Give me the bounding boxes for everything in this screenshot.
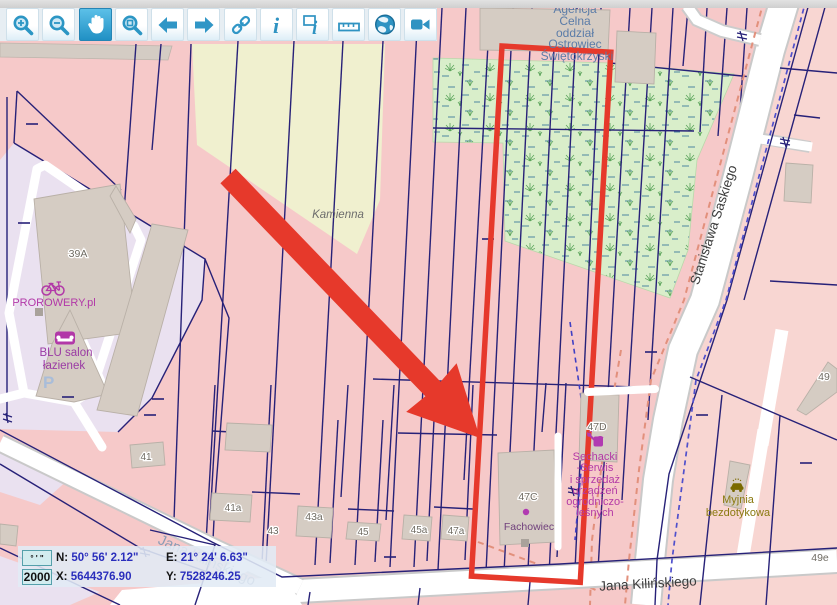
- svg-text:Myjnia: Myjnia: [722, 494, 755, 506]
- svg-text:P: P: [43, 373, 54, 392]
- svg-text:BLU salon: BLU salon: [39, 347, 92, 359]
- svg-text:39A: 39A: [69, 248, 88, 260]
- svg-text:i: i: [273, 13, 280, 38]
- svg-text:i: i: [312, 18, 318, 38]
- svg-text:41a: 41a: [225, 503, 242, 514]
- svg-text:leśnych: leśnych: [576, 507, 613, 519]
- svg-text:49e: 49e: [811, 552, 829, 564]
- svg-text:47C: 47C: [518, 491, 538, 503]
- svg-text:43a: 43a: [305, 511, 323, 523]
- svg-text:45a: 45a: [411, 525, 428, 536]
- svg-text:Kamienna: Kamienna: [312, 209, 364, 221]
- svg-text:43: 43: [267, 526, 279, 537]
- svg-text:45: 45: [357, 527, 369, 538]
- svg-text:bezdotykowa: bezdotykowa: [706, 507, 771, 519]
- svg-text:PROROWERY.pl: PROROWERY.pl: [12, 297, 95, 309]
- svg-text:Fachowiec: Fachowiec: [504, 521, 554, 533]
- svg-text:Świętokrzyski: Świętokrzyski: [541, 48, 614, 63]
- svg-text:-Serwis: -Serwis: [577, 462, 614, 474]
- svg-text:47D: 47D: [587, 421, 607, 433]
- svg-text:49: 49: [818, 371, 830, 383]
- svg-text:łazienek: łazienek: [43, 360, 85, 372]
- svg-text:47a: 47a: [448, 526, 465, 537]
- svg-text:41: 41: [140, 452, 152, 463]
